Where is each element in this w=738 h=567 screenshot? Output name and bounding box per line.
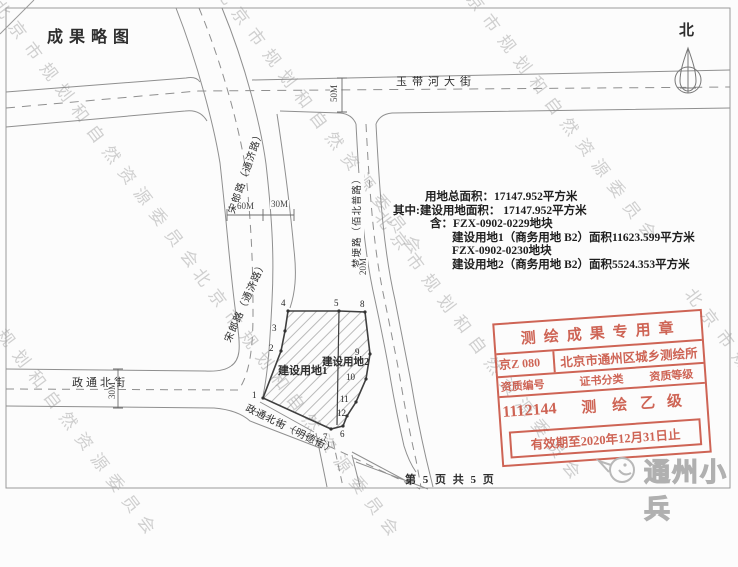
road-label-mengpu: 梦埂路（佰北普路） (354, 173, 364, 268)
dim-30m-belt: 30M (270, 200, 289, 209)
vertex-number: 7 (323, 432, 328, 442)
vertex-number: 3 (272, 323, 277, 333)
vertex-number: 2 (269, 343, 274, 353)
area-statistics: 用地总面积：17147.952平方米 其中:建设用地面积： 17147.952平… (393, 191, 695, 272)
compass-icon (675, 48, 701, 93)
stat-line: 建设用地1（商务用地 B2）面积11623.599平方米 (393, 232, 695, 246)
logo-text: 通州小兵 (644, 452, 738, 526)
parcel2-label: 建设用地2 (322, 358, 369, 369)
corner-line (0, 0, 34, 34)
page-title: 成果略图 (47, 30, 135, 46)
vertex-number: 9 (355, 347, 360, 357)
dim-30m-zhengtong: 30M (108, 381, 117, 400)
vertex-number: 8 (360, 299, 365, 309)
stat-line: 其中:建设用地面积： 17147.952平方米 (393, 205, 695, 219)
stat-line: FZX-0902-0230地块 (393, 245, 695, 259)
seal-cert-number: 1112144 (500, 397, 577, 422)
stat-line: 用地总面积：17147.952平方米 (393, 191, 695, 205)
vertex-number: 1 (252, 390, 257, 400)
vertex-number: 6 (340, 429, 345, 439)
vertex-number: 11 (340, 394, 349, 404)
bird-logo-icon (592, 450, 644, 488)
north-label: 北 (679, 24, 694, 39)
dim-20m: 20M (359, 257, 368, 276)
survey-seal: 测绘成果专用章 京Z 080 北京市通州区城乡测绘所 资质编号 证书分类 资质等… (492, 309, 712, 467)
vertex-number: 10 (346, 372, 355, 382)
stat-line: 含：FZX-0902-0229地块 (393, 218, 695, 232)
dim-60m: 60M (236, 202, 255, 211)
seal-grade: 乙 级 (637, 387, 706, 415)
parcel1-label: 建设用地1 (278, 366, 328, 377)
dim-50m: 50M (330, 84, 339, 103)
page-footer: 第 5 页 共 5 页 (405, 475, 496, 486)
vertex-number: 12 (337, 408, 346, 418)
vertex-number: 4 (281, 298, 286, 308)
seal-category: 测 绘 (575, 392, 638, 419)
stat-line: 建设用地2（商务用地 B2）面积5524.353平方米 (393, 259, 695, 273)
vertex-number: 5 (334, 298, 339, 308)
road-label-yudaihe: 玉带河大街 (396, 77, 476, 88)
scanned-survey-page: { "page": { "title": "成果略图", "footer": "… (0, 0, 738, 497)
seal-cert-prefix: 京Z 080 (496, 351, 555, 376)
road-label-zhengtong: 政通北街 (72, 378, 128, 389)
